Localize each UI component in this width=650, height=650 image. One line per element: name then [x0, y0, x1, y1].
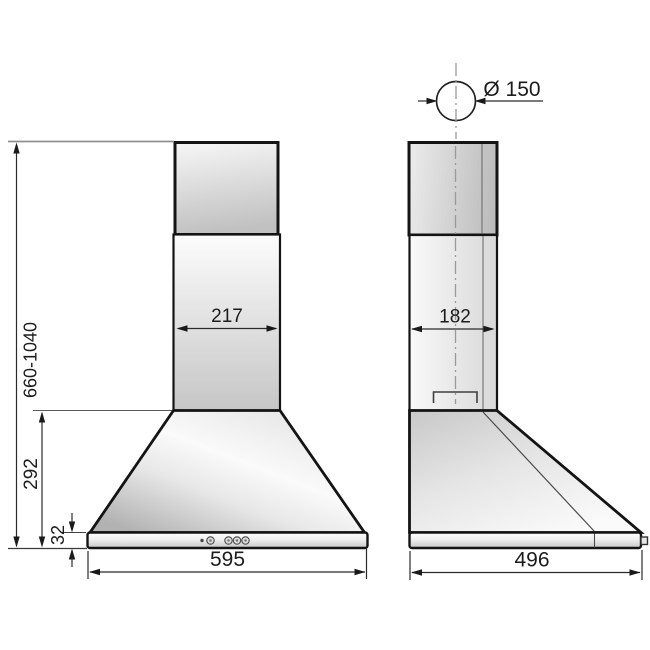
side-cone — [410, 411, 642, 533]
speed2-dot-icon — [236, 539, 238, 541]
front-view — [88, 143, 368, 549]
side-view — [409, 63, 648, 548]
hood-depth-label: 496 — [514, 549, 549, 572]
technical-diagram: 217 660-1040 292 32 — [0, 0, 650, 650]
base-thickness-label: 32 — [48, 525, 68, 545]
light-button-dot-icon — [209, 539, 212, 542]
arrow-down-icon — [69, 522, 75, 533]
rear-spacer-nub — [641, 537, 648, 545]
cone-height-label: 292 — [21, 458, 42, 490]
arrow-left-icon — [411, 569, 422, 575]
hood-width-label: 595 — [210, 548, 245, 571]
arrow-right-icon — [630, 569, 641, 575]
arrow-up-icon — [69, 549, 75, 560]
chimney-depth-label: 182 — [439, 307, 471, 328]
duct-diameter-label: Ø 150 — [483, 78, 540, 101]
arrow-right-icon — [355, 569, 366, 575]
dim-hood-width: 595 — [88, 548, 367, 579]
speed1-dot-icon — [227, 539, 229, 541]
chimney-width-label: 217 — [211, 306, 243, 327]
diagram-canvas: 217 660-1040 292 32 — [0, 0, 650, 650]
height-range-label: 660-1040 — [21, 322, 41, 398]
dim-hood-depth: 496 — [410, 549, 642, 581]
speed3-dot-icon — [244, 539, 246, 541]
arrow-up-icon — [13, 143, 19, 154]
front-chimney-upper — [175, 143, 278, 235]
arrow-down-icon — [13, 537, 19, 548]
side-chimney-upper — [409, 143, 497, 236]
indicator-dot-icon — [200, 539, 203, 542]
arrow-up-icon — [39, 412, 45, 423]
front-cone — [90, 411, 365, 533]
arrow-left-icon — [89, 569, 100, 575]
side-base-panel — [410, 533, 642, 549]
arrow-down-icon — [39, 537, 45, 548]
dim-base-thickness: 32 — [48, 513, 86, 567]
